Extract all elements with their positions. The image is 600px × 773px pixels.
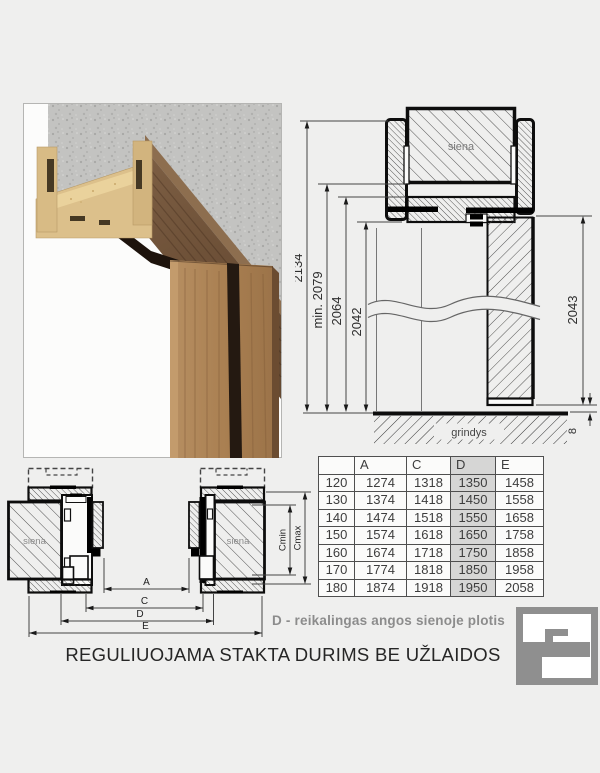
table-cell: 1474 (355, 509, 407, 527)
table-cell: 140 (319, 509, 355, 527)
table-cell: 1574 (355, 527, 407, 545)
wall-label-left: siena (23, 536, 46, 547)
dim-d: D (136, 609, 143, 620)
table-cell: 1550 (451, 509, 496, 527)
seal (93, 549, 101, 557)
table-cell: 1818 (407, 562, 451, 580)
table-cell: 1858 (496, 544, 544, 562)
dimension-labels: 2134 min. 2079 2064 2042 2043 8 (295, 254, 580, 435)
architrave-flange-right (466, 208, 533, 214)
table-header-cell: A (355, 457, 407, 475)
brand-logo-icon (516, 607, 598, 685)
seal (470, 222, 483, 227)
adjustable-extension-dashed (29, 469, 93, 488)
table-cell: 1350 (451, 474, 496, 492)
wall-label-right: siena (227, 536, 250, 547)
table-cell: 1318 (407, 474, 451, 492)
size-table: ACDE 12012741318135014581301374141814501… (318, 456, 544, 597)
seal (470, 215, 483, 220)
oak-jamb (170, 260, 279, 458)
table-cell: 1674 (355, 544, 407, 562)
table-header-cell: C (407, 457, 451, 475)
table-cell: 1458 (496, 474, 544, 492)
table-header-cell: D (451, 457, 496, 475)
door-bottom-edge (488, 399, 533, 406)
table-cell: 1774 (355, 562, 407, 580)
table-row: 1701774181818501958 (319, 562, 544, 580)
floor: grindys (303, 412, 568, 445)
dim-floor-gap: 8 (567, 428, 579, 434)
size-table-body: 1201274131813501458130137414181450155814… (319, 474, 544, 597)
table-row: ACDE (319, 457, 544, 475)
page-title: REGULIUOJAMA STAKTA DURIMS BE UŽLAIDOS (38, 644, 528, 666)
table-cell: 2058 (496, 579, 544, 597)
table-cell: 1518 (407, 509, 451, 527)
table-cell: 1950 (451, 579, 496, 597)
frame-corner-photo (23, 103, 282, 458)
table-row: 1401474151815501658 (319, 509, 544, 527)
table-cell: 1450 (451, 492, 496, 510)
table-cell: 1658 (496, 509, 544, 527)
dim-a: A (143, 577, 150, 588)
table-row: 1801874191819502058 (319, 579, 544, 597)
dimension-note: D - reikalingas angos sienoje plotis (272, 613, 522, 628)
table-cell: 160 (319, 544, 355, 562)
vertical-section-drawing: siena grindys (295, 98, 600, 450)
dim-total-height: 2134 (295, 254, 305, 283)
table-cell: 1374 (355, 492, 407, 510)
table-cell: 170 (319, 562, 355, 580)
dim-min-height: min. 2079 (310, 271, 325, 328)
table-cell: 150 (319, 527, 355, 545)
wall-label: siena (448, 141, 475, 153)
floor-label: grindys (451, 427, 487, 439)
dim-c: C (141, 596, 148, 607)
table-cell: 1558 (496, 492, 544, 510)
table-cell: 1418 (407, 492, 451, 510)
table-cell: 1750 (451, 544, 496, 562)
dim-frame-height: 2064 (329, 297, 344, 326)
table-cell: 1650 (451, 527, 496, 545)
table-row: 1201274131813501458 (319, 474, 544, 492)
spec-sheet: siena grindys (0, 0, 600, 773)
dim-e: E (142, 621, 149, 632)
adjustable-extension-dashed (201, 469, 265, 488)
table-cell: 1850 (451, 562, 496, 580)
table-cell: 1918 (407, 579, 451, 597)
table-cell: 1874 (355, 579, 407, 597)
frame-head-structure: siena (377, 109, 534, 412)
dim-cmin: Cmin (278, 529, 289, 551)
table-cell: 1618 (407, 527, 451, 545)
size-table-head: ACDE (319, 457, 544, 475)
dim-opening-height: 2042 (349, 308, 364, 337)
horizontal-section-drawing: siena siena (5, 462, 315, 640)
table-cell: 180 (319, 579, 355, 597)
dim-door-height: 2043 (565, 296, 580, 325)
table-cell: 120 (319, 474, 355, 492)
table-row: 1601674171817501858 (319, 544, 544, 562)
dim-cmax: Cmax (293, 525, 304, 550)
table-header-cell (319, 457, 355, 475)
seal (191, 549, 199, 557)
table-cell: 1758 (496, 527, 544, 545)
table-row: 1501574161816501758 (319, 527, 544, 545)
table-cell: 1274 (355, 474, 407, 492)
architrave-right (517, 120, 534, 214)
table-cell: 1718 (407, 544, 451, 562)
table-row: 1301374141814501558 (319, 492, 544, 510)
architrave-flange-left (388, 207, 438, 213)
table-header-cell: E (496, 457, 544, 475)
jamb-section-left: siena (9, 469, 104, 594)
table-cell: 1958 (496, 562, 544, 580)
table-cell: 130 (319, 492, 355, 510)
